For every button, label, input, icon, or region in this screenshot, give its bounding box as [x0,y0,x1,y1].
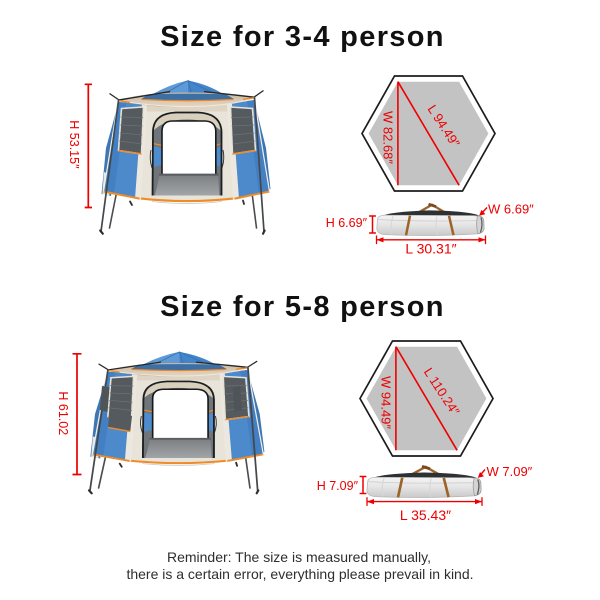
svg-text:L 30.31″: L 30.31″ [405,241,456,257]
svg-text:Size for 3-4 person: Size for 3-4 person [160,21,445,53]
svg-text:W 7.09″: W 7.09″ [487,464,533,479]
svg-text:W 94.49″: W 94.49″ [379,376,394,429]
svg-text:W 6.69″: W 6.69″ [488,202,534,217]
svg-text:L 35.43″: L 35.43″ [400,507,451,523]
svg-text:H 7.09″: H 7.09″ [317,479,359,493]
svg-text:Reminder: The size is measured: Reminder: The size is measured manually, [167,549,431,565]
svg-text:W 82.68″: W 82.68″ [381,111,396,164]
svg-text:H 61.02: H 61.02 [56,391,70,435]
svg-text:H 6.69″: H 6.69″ [326,216,368,230]
svg-text:H 53.15″: H 53.15″ [67,120,81,169]
svg-text:Size for 5-8 person: Size for 5-8 person [160,291,445,323]
svg-text:there is a certain error, ever: there is a certain error, everything ple… [126,566,473,582]
